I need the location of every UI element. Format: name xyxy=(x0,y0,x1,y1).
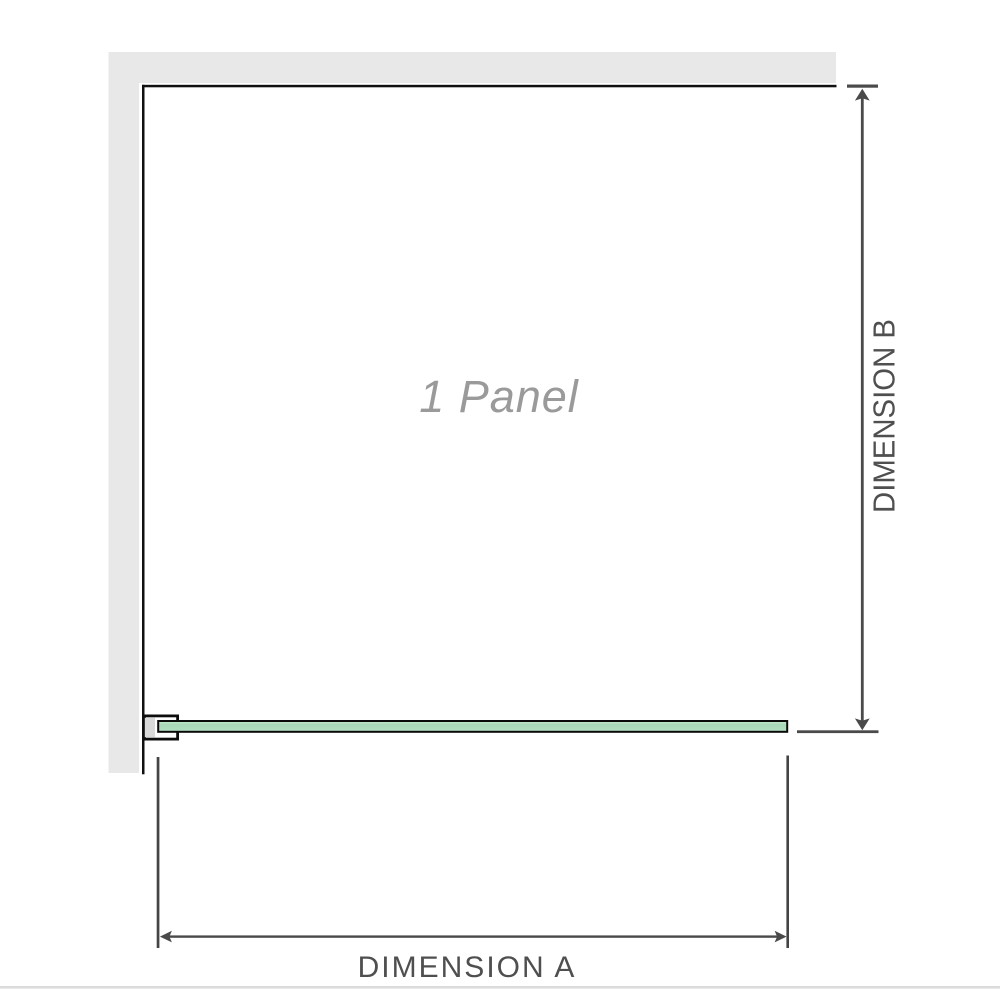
svg-text:DIMENSION B: DIMENSION B xyxy=(867,319,902,513)
svg-text:DIMENSION A: DIMENSION A xyxy=(358,951,577,984)
svg-text:1 Panel: 1 Panel xyxy=(419,371,580,422)
